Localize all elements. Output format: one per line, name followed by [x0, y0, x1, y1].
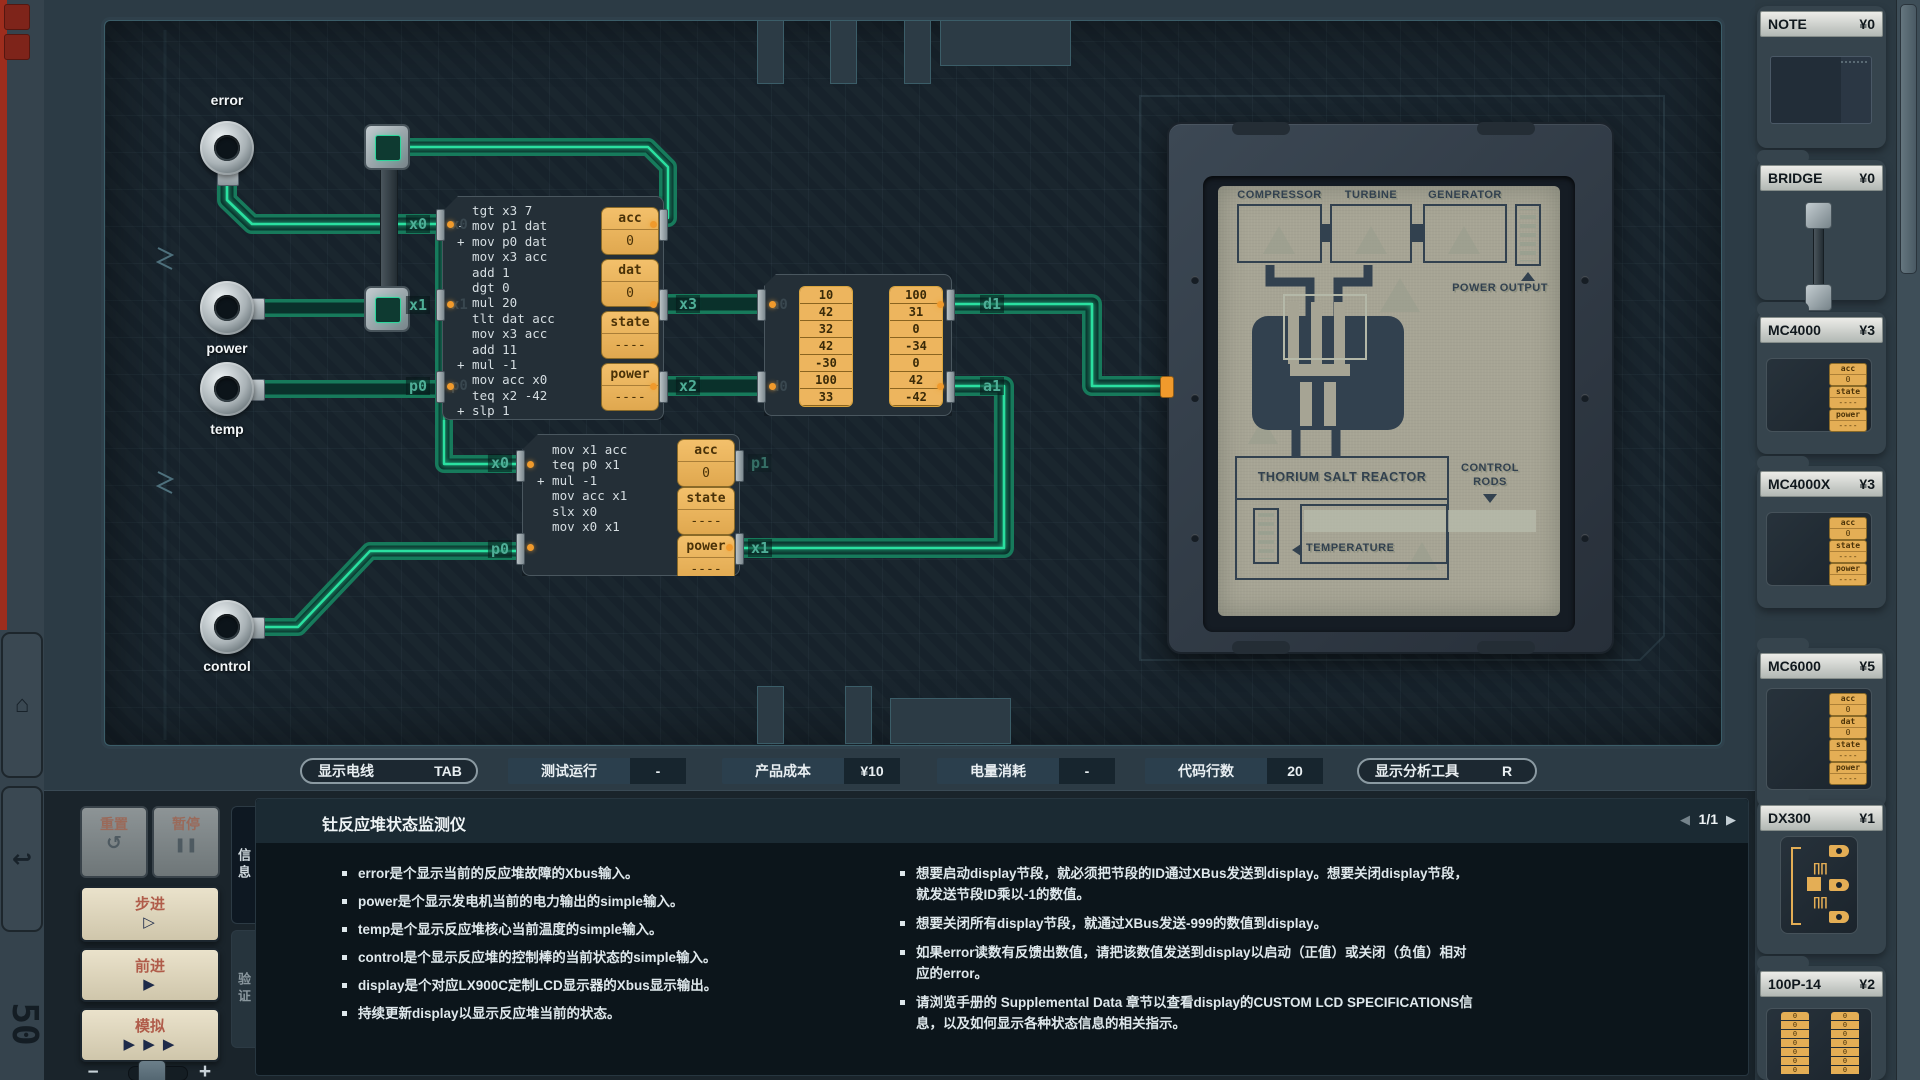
pin-label-temp: temp — [172, 421, 282, 437]
vessel-overlay-box — [1283, 294, 1367, 360]
case-notch — [1477, 641, 1535, 654]
simulate-label: 模拟 — [82, 1015, 218, 1036]
vessel-channel — [1300, 382, 1312, 426]
step-button[interactable]: 步进 ▷ — [80, 886, 220, 942]
pin-label-control: control — [172, 658, 282, 674]
ram-cell: -30 — [800, 355, 852, 371]
part-name: MC6000 — [1768, 658, 1821, 674]
wire-ram-d1-to-display[interactable] — [950, 304, 1166, 386]
part-price: ¥5 — [1859, 658, 1875, 674]
part-name: MC4000X — [1768, 476, 1830, 492]
reset-button[interactable]: 重置 ↺ — [80, 806, 148, 878]
dx-node-dot — [1836, 882, 1842, 888]
screw-icon — [1191, 534, 1199, 542]
part-icon-note — [1757, 42, 1886, 144]
mini-register-acc: acc0 — [1829, 693, 1867, 716]
info-bullet: 想要启动display节段，就必须把节段的ID通过XBus发送到display。… — [900, 863, 1480, 905]
statusbar-toggle[interactable]: 显示电线TAB — [300, 758, 478, 784]
register-value: 0 — [678, 462, 734, 486]
mini-register-name: dat — [1830, 717, 1866, 728]
info-bullet: power是个显示发电机当前的电力输出的simple输入。 — [342, 891, 762, 912]
register-value: ---- — [602, 334, 658, 358]
puzzle-info-panel: 钍反应堆状态监测仪 ◀ 1/1 ▶ error是个显示当前的反应堆故障的Xbus… — [255, 798, 1749, 1076]
bridge-socket — [375, 297, 401, 323]
pager-prev-icon[interactable]: ◀ — [1680, 812, 1690, 828]
ram-icon-cell: 0 — [1831, 1057, 1859, 1065]
sidebar-divider — [1757, 790, 1809, 804]
bridge-foot-bottom[interactable] — [364, 286, 410, 332]
ram-icon-column: 0000000 — [1781, 1012, 1809, 1078]
ram-icon-cell: 0 — [1781, 1012, 1809, 1020]
speed-plus-button[interactable]: + — [196, 1060, 214, 1078]
chip2-port-p1[interactable] — [735, 450, 744, 482]
stat-value: ¥10 — [844, 758, 900, 784]
input-pin-temp[interactable] — [200, 362, 254, 416]
port-dot — [447, 301, 454, 308]
mini-register-name: state — [1830, 541, 1866, 552]
part-icon-dx: ∏∏∏∏ — [1757, 836, 1886, 950]
port-dot — [650, 221, 657, 228]
stat-label: 产品成本 — [722, 758, 844, 784]
part-icon-mc3: acc0state----power---- — [1757, 348, 1886, 450]
port-dot — [726, 544, 733, 551]
dx-node-icon — [1829, 879, 1849, 891]
sidebar-divider — [1757, 150, 1809, 164]
mini-register-value: 0 — [1830, 705, 1866, 715]
wire-label-x0: x0 — [406, 215, 430, 233]
dx-left-line — [1791, 847, 1801, 925]
part-header: MC6000¥5 — [1760, 653, 1883, 679]
wire-label-x3: x3 — [676, 295, 700, 313]
part-price: ¥2 — [1859, 976, 1875, 992]
part-price: ¥3 — [1859, 476, 1875, 492]
advance-icon: ▶ — [82, 976, 218, 994]
ram-column-1: 10423242-3010033 — [799, 286, 853, 407]
chip1-port-x1[interactable] — [436, 289, 445, 321]
step-icon: ▷ — [82, 914, 218, 932]
pager-next-icon[interactable]: ▶ — [1726, 812, 1736, 828]
dx-node-dot — [1836, 914, 1842, 920]
bridge-icon-foot — [1805, 202, 1832, 229]
input-pin-control[interactable] — [200, 600, 254, 654]
stat-value: TAB — [420, 760, 476, 782]
stat-value: - — [630, 758, 686, 784]
ram-cell: 33 — [800, 389, 852, 405]
ram-cell: -42 — [890, 389, 942, 405]
register-dat: dat0 — [601, 259, 659, 307]
wire-label-x1: x1 — [748, 539, 772, 557]
info-bullet: display是个对应LX900C定制LCD显示器的Xbus显示输出。 — [342, 975, 762, 996]
mini-register-value: 0 — [1830, 728, 1866, 738]
mini-register-value: 0 — [1830, 375, 1866, 385]
pin-label-power: power — [172, 340, 282, 356]
mini-register-acc: acc0 — [1829, 517, 1867, 540]
screw-icon — [1581, 394, 1589, 402]
mini-register-value: ---- — [1830, 751, 1866, 761]
port-dot — [650, 383, 657, 390]
pin-hole — [214, 376, 240, 402]
register-value: ---- — [602, 386, 658, 410]
mc-chip-icon: acc0state----power---- — [1766, 358, 1872, 432]
mini-register-name: acc — [1830, 694, 1866, 705]
info-bullets-left: error是个显示当前的反应堆故障的Xbus输入。power是个显示发电机当前的… — [342, 863, 762, 1031]
ram-icon-cell: 0 — [1781, 1066, 1809, 1074]
bridge-icon-foot — [1805, 284, 1832, 311]
info-bullet: control是个显示反应堆的控制棒的当前状态的simple输入。 — [342, 947, 762, 968]
register-name: power — [602, 364, 658, 386]
pin-hole — [214, 614, 240, 640]
lcd-temperature-label: TEMPERATURE — [1306, 542, 1416, 554]
port-dot — [937, 301, 944, 308]
ram-cell: 100 — [890, 287, 942, 303]
parts-sidebar: NOTE¥0BRIDGE¥0MC4000¥3acc0state----power… — [1755, 0, 1920, 1080]
register-name: state — [602, 312, 658, 334]
arrow-down-icon — [1483, 494, 1497, 503]
mini-register-state: state---- — [1829, 739, 1867, 762]
mini-register-power: power---- — [1829, 563, 1867, 586]
register-acc: acc0 — [677, 439, 735, 487]
display-input-pin[interactable] — [1160, 376, 1174, 398]
statusbar-toggle[interactable]: 显示分析工具R — [1357, 758, 1537, 784]
stat-label: 电量消耗 — [937, 758, 1059, 784]
mini-register-power: power---- — [1829, 409, 1867, 432]
part-price: ¥1 — [1859, 810, 1875, 826]
ram-icon-column: 0000000 — [1831, 1012, 1859, 1078]
speed-minus-button[interactable]: − — [84, 1062, 102, 1080]
ram-icon-cell: 0 — [1831, 1021, 1859, 1029]
port-dot — [937, 383, 944, 390]
info-title-bar: 钍反应堆状态监测仪 ◀ 1/1 ▶ — [256, 799, 1748, 843]
mini-register-name: power — [1830, 763, 1866, 774]
part-icon-bridge — [1757, 196, 1886, 296]
chip-mc4000[interactable]: mov x1 acc teq p0 x1 + mul -1 mov acc x1… — [522, 434, 740, 576]
advance-label: 前进 — [82, 955, 218, 976]
chip2-port-p0[interactable] — [516, 533, 525, 565]
lcd-temp-gauge — [1253, 508, 1279, 564]
port-dot — [650, 301, 657, 308]
register-power: power---- — [677, 535, 735, 583]
ram-icon-cell: 0 — [1831, 1030, 1859, 1038]
chip1-port-x2[interactable] — [659, 371, 668, 403]
sidebar-divider — [1757, 302, 1809, 316]
screw-icon — [1191, 394, 1199, 402]
part-name: DX300 — [1768, 810, 1811, 826]
ram-icon-cell: 0 — [1831, 1048, 1859, 1056]
statusbar-readout: 产品成本¥10 — [722, 758, 900, 784]
chip1-port-x3[interactable] — [659, 289, 668, 321]
mini-register-state: state---- — [1829, 386, 1867, 409]
mini-register-name: state — [1830, 740, 1866, 751]
sidebar-divider — [1757, 956, 1809, 970]
advance-button[interactable]: 前进 ▶ — [80, 948, 220, 1002]
lcd-control-rods-label1: CONTROL — [1448, 462, 1532, 474]
mini-register-value: ---- — [1830, 421, 1866, 431]
sidebar-divider — [1757, 456, 1809, 470]
ram-cell: 0 — [890, 355, 942, 371]
mini-register-value: ---- — [1830, 575, 1866, 585]
info-bullets-right: 想要启动display节段，就必须把节段的ID通过XBus发送到display。… — [900, 863, 1480, 1042]
ram-port-a1[interactable] — [946, 371, 955, 403]
statusbar-readout: 代码行数20 — [1145, 758, 1323, 784]
chip1-port-p0[interactable] — [436, 371, 445, 403]
wire-label-p0: p0 — [406, 377, 430, 395]
statusbar-readout: 测试运行- — [508, 758, 686, 784]
pin-label-error: error — [172, 92, 282, 108]
pause-icon: ❚❚ — [154, 834, 218, 854]
dx-node-icon — [1829, 911, 1849, 923]
register-state: state---- — [601, 311, 659, 359]
wire-label-d1: d1 — [980, 295, 1004, 313]
mini-register-acc: acc0 — [1829, 363, 1867, 386]
ram-icon-cell: 0 — [1781, 1021, 1809, 1029]
reset-label: 重置 — [82, 814, 146, 834]
register-name: state — [678, 488, 734, 510]
note-dots — [1841, 61, 1867, 63]
tab-verification[interactable]: 验证 — [231, 930, 255, 1048]
part-price: ¥0 — [1859, 170, 1875, 186]
mini-register-state: state---- — [1829, 540, 1867, 563]
chip-code[interactable]: tgt x3 7 - mov p1 dat + mov p0 dat mov x… — [457, 203, 555, 419]
part-dx300[interactable]: DX300¥1∏∏∏∏ — [1757, 800, 1886, 954]
stat-label: 测试运行 — [508, 758, 630, 784]
screw-icon — [1581, 276, 1589, 284]
part-price: ¥3 — [1859, 322, 1875, 338]
part-mc4000[interactable]: MC4000¥3acc0state----power---- — [1757, 312, 1886, 454]
info-bullet: 如果error读数有反馈出数值，请把该数值发送到display以启动（正值）或关… — [900, 942, 1480, 984]
part-header: MC4000X¥3 — [1760, 471, 1883, 497]
part-header: DX300¥1 — [1760, 805, 1883, 831]
part-header: NOTE¥0 — [1760, 11, 1883, 37]
step-label: 步进 — [82, 893, 218, 914]
part-header: MC4000¥3 — [1760, 317, 1883, 343]
ram-icon-cell: 0 — [1781, 1039, 1809, 1047]
register-name: acc — [678, 440, 734, 462]
ram-port-d1[interactable] — [946, 289, 955, 321]
register-value: 0 — [602, 230, 658, 254]
wire-label-a1: a1 — [980, 377, 1004, 395]
arrow-left-icon — [1292, 544, 1301, 556]
mini-register-name: power — [1830, 410, 1866, 421]
stat-value: 20 — [1267, 758, 1323, 784]
input-pin-error[interactable] — [200, 121, 254, 175]
input-pin-power[interactable] — [200, 281, 254, 335]
part-header: BRIDGE¥0 — [1760, 165, 1883, 191]
ram-column-2: 100310-34042-42 — [889, 286, 943, 407]
dx-node-icon — [1829, 845, 1849, 857]
ram-icon-cell: 0 — [1831, 1066, 1859, 1074]
statusbar-readout: 电量消耗- — [937, 758, 1115, 784]
stat-label: 代码行数 — [1145, 758, 1267, 784]
mini-register-value: 0 — [1830, 529, 1866, 539]
ram-port-d0[interactable] — [757, 371, 766, 403]
register-state: state---- — [677, 487, 735, 535]
port-dot — [447, 383, 454, 390]
pulse-glyph-icon: ∏∏ — [1813, 861, 1827, 875]
mini-register-name: state — [1830, 387, 1866, 398]
part-icon-mc4: acc0dat0state----power---- — [1757, 684, 1886, 804]
mini-register-value: ---- — [1830, 552, 1866, 562]
port-dot — [447, 221, 454, 228]
reset-icon: ↺ — [82, 834, 146, 854]
wire-label-p1: p1 — [748, 454, 772, 472]
part-name: BRIDGE — [1768, 170, 1822, 186]
mini-register-value: ---- — [1830, 774, 1866, 784]
part-bridge[interactable]: BRIDGE¥0 — [1757, 160, 1886, 300]
wire-label-x1: x1 — [406, 296, 430, 314]
ram-icon-cell: 0 — [1831, 1012, 1859, 1020]
chip-code[interactable]: mov x1 acc teq p0 x1 + mul -1 mov acc x1… — [537, 442, 627, 534]
register-value: ---- — [678, 510, 734, 534]
sidebar-divider — [1757, 638, 1809, 652]
stat-label: 显示分析工具 — [1375, 760, 1475, 782]
part-price: ¥0 — [1859, 16, 1875, 32]
pause-label: 暂停 — [154, 814, 218, 834]
wire-control-to-chip2-p0[interactable] — [251, 551, 522, 627]
scrollbar-handle[interactable] — [1900, 4, 1917, 274]
part-icon-ram: 00000000000000 — [1757, 1002, 1886, 1076]
screw-icon — [1581, 534, 1589, 542]
pin-hole — [214, 135, 240, 161]
ram-icon-cell: 0 — [1781, 1048, 1809, 1056]
ram-icon-cell: 0 — [1781, 1057, 1809, 1065]
stat-label: 显示电线 — [318, 760, 416, 782]
pin-hole — [214, 295, 240, 321]
lcd-control-rods-label2: RODS — [1448, 476, 1532, 488]
dx-node-dot — [1836, 848, 1842, 854]
wire-label-p0: p0 — [488, 540, 512, 558]
pulse-glyph-icon: ∏∏ — [1813, 895, 1827, 909]
stat-value: R — [1479, 760, 1535, 782]
chip1-port-p1[interactable] — [659, 209, 668, 241]
sidebar-scrollbar[interactable] — [1896, 0, 1920, 1080]
bridge-socket — [375, 135, 401, 161]
ram-cell: 100 — [800, 372, 852, 388]
part-header: 100P-14¥2 — [1760, 971, 1883, 997]
screw-icon — [1191, 276, 1199, 284]
case-notch — [1477, 122, 1535, 135]
wire-label-x0: x0 — [488, 454, 512, 472]
puzzle-title: 钍反应堆状态监测仪 — [322, 811, 466, 835]
simulate-icon: ▶ ▶ ▶ — [82, 1036, 218, 1054]
pager-value: 1/1 — [1699, 811, 1718, 827]
mini-register-dat: dat0 — [1829, 716, 1867, 739]
vessel-channel — [1290, 364, 1350, 376]
vessel-channel — [1324, 382, 1336, 426]
ram-chip-icon: 00000000000000 — [1766, 1008, 1872, 1080]
ram-cell: 42 — [800, 304, 852, 320]
mc-chip-icon: acc0dat0state----power---- — [1766, 688, 1872, 790]
bridge-foot-top[interactable] — [364, 124, 410, 170]
info-bullet: error是个显示当前的反应堆故障的Xbus输入。 — [342, 863, 762, 884]
info-bullet: 想要关闭所有display节段，就通过XBus发送-999的数值到display… — [900, 913, 1480, 934]
stat-value: - — [1059, 758, 1115, 784]
part-icon-mc3: acc0state----power---- — [1757, 502, 1886, 604]
chip2-port-x0[interactable] — [516, 450, 525, 482]
part-note[interactable]: NOTE¥0 — [1757, 6, 1886, 148]
register-name: acc — [602, 208, 658, 230]
mini-register-value: ---- — [1830, 398, 1866, 408]
shenzhen-io-editor: ⌂ ↩ 50 — [0, 0, 1920, 1080]
part-name: 100P-14 — [1768, 976, 1821, 992]
ram-icon-cell: 0 — [1781, 1030, 1809, 1038]
info-bullet: 持续更新display以显示反应堆当前的状态。 — [342, 1003, 762, 1024]
info-bullet: 请浏览手册的 Supplemental Data 章节以查看display的CU… — [900, 992, 1480, 1034]
ram-cell: 32 — [800, 321, 852, 337]
part-mc6000[interactable]: MC6000¥5acc0dat0state----power---- — [1757, 648, 1886, 808]
mini-register-power: power---- — [1829, 762, 1867, 785]
ram-cell: 0 — [890, 321, 942, 337]
tab-info[interactable]: 信息 — [231, 806, 255, 924]
part-100p-14[interactable]: 100P-14¥200000000000000 — [1757, 966, 1886, 1080]
mini-register-name: acc — [1830, 364, 1866, 375]
part-name: MC4000 — [1768, 322, 1821, 338]
speed-slider-handle[interactable] — [138, 1060, 166, 1080]
mini-register-name: acc — [1830, 518, 1866, 529]
part-mc4000x[interactable]: MC4000X¥3acc0state----power---- — [1757, 466, 1886, 608]
note-icon — [1770, 56, 1872, 124]
chip-100p14-ram[interactable]: a0 d0 d1 a1 10423242-3010033 100310-3404… — [764, 274, 952, 416]
lcd-reactor-label: THORIUM SALT REACTOR — [1235, 470, 1449, 484]
ram-cell: 31 — [890, 304, 942, 320]
lcd-screen: COMPRESSOR TURBINE GENERATOR POWER OUTPU… — [1218, 186, 1560, 616]
simulate-button[interactable]: 模拟 ▶ ▶ ▶ — [80, 1008, 220, 1062]
port-dot — [769, 301, 776, 308]
port-dot — [527, 461, 534, 468]
case-notch — [1232, 641, 1290, 654]
chip-mc6000[interactable]: tgt x3 7 - mov p1 dat + mov p0 dat mov x… — [442, 196, 664, 420]
ram-port-a0[interactable] — [757, 289, 766, 321]
dx300-chip-icon: ∏∏∏∏ — [1780, 836, 1858, 934]
part-name: NOTE — [1768, 16, 1807, 32]
chip2-port-x1[interactable] — [735, 533, 744, 565]
port-dot — [527, 544, 534, 551]
port-dot — [769, 383, 776, 390]
ram-cell: -34 — [890, 338, 942, 354]
register-acc: acc0 — [601, 207, 659, 255]
register-name: dat — [602, 260, 658, 282]
mini-register-name: power — [1830, 564, 1866, 575]
mc-chip-icon: acc0state----power---- — [1766, 512, 1872, 586]
ram-cell: 42 — [800, 338, 852, 354]
ram-cell: 10 — [800, 287, 852, 303]
lcd-rod-outline — [1300, 504, 1448, 564]
ram-cell: 42 — [890, 372, 942, 388]
case-notch — [1232, 122, 1290, 135]
ram-icon-cell: 0 — [1831, 1039, 1859, 1047]
dx-center-square — [1807, 877, 1821, 891]
wire-label-x2: x2 — [676, 377, 700, 395]
chip1-port-x0[interactable] — [436, 209, 445, 241]
pause-button[interactable]: 暂停 ❚❚ — [152, 806, 220, 878]
info-bullet: temp是个显示反应堆核心当前温度的simple输入。 — [342, 919, 762, 940]
